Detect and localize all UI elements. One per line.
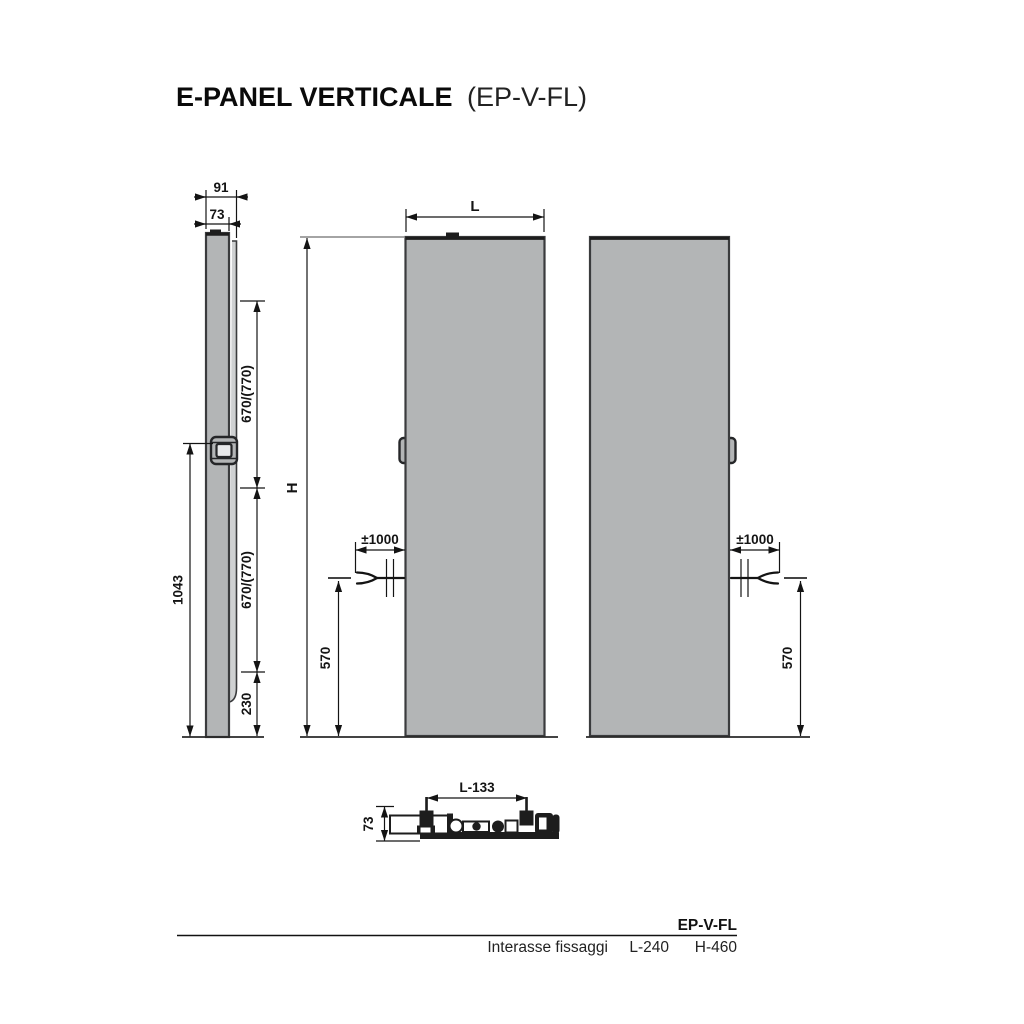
page-title-code: (EP-V-FL) (467, 82, 587, 112)
profile-pipe (450, 820, 463, 833)
cable-right (731, 559, 807, 597)
technical-drawing: E-PANEL VERTICALE (EP-V-FL) 91 (0, 0, 1024, 1024)
dim-cable-length-right-label: ±1000 (736, 532, 773, 547)
dim-side-chain: 670/(770) 670/(770) 230 (239, 301, 265, 736)
dim-cable-length-right: ±1000 (730, 532, 780, 573)
dim-span-lower-label: 670/(770) (239, 551, 254, 609)
spec-model: EP-V-FL (678, 917, 737, 934)
spec-l-value: L-240 (629, 939, 669, 956)
dim-cable-length-mid: ±1000 (356, 532, 406, 573)
dim-width-label: L (470, 198, 479, 215)
dim-connection-height-right-label: 570 (780, 647, 795, 670)
dim-depth-panel: 73 (194, 207, 241, 231)
spec-row-label: Interasse fissaggi (487, 939, 608, 956)
dim-connection-height-mid-label: 570 (318, 647, 333, 670)
dim-depth-total-label: 91 (213, 180, 229, 195)
dim-cable-length-mid-label: ±1000 (361, 532, 398, 547)
side-wall-bracket (211, 437, 237, 464)
spec-table: EP-V-FL Interasse fissaggi L-240 H-460 (177, 917, 737, 956)
front-vent-cap (446, 233, 459, 238)
dim-width: L (406, 198, 544, 232)
drawing-page: E-PANEL VERTICALE (EP-V-FL) 91 (0, 0, 1024, 1024)
spec-h-value: H-460 (695, 939, 738, 956)
dim-bottom-depth-label: 73 (361, 816, 376, 832)
dim-bracket-height-label: 1043 (171, 574, 186, 605)
dim-bracket-span: L-133 (427, 780, 527, 811)
dim-bracket-span-label: L-133 (459, 780, 495, 795)
profile-cross-section (390, 797, 560, 839)
side-rear-plate (230, 241, 237, 702)
side-panel-body (206, 233, 229, 737)
dim-bottom-offset-label: 230 (239, 693, 254, 716)
front-panel-body (406, 237, 545, 736)
right-view: ±1000 570 (586, 237, 810, 737)
profile-fitting (492, 821, 504, 833)
profile-valve (472, 822, 480, 830)
dim-connection-height-mid: 570 (318, 581, 339, 736)
bracket-block-left (420, 811, 434, 826)
side-vent-cap (210, 230, 221, 235)
dim-connection-height-right: 570 (780, 581, 801, 736)
page-title-main: E-PANEL VERTICALE (176, 82, 453, 112)
dim-span-upper-label: 670/(770) (239, 365, 254, 423)
page-title: E-PANEL VERTICALE (EP-V-FL) (176, 82, 587, 112)
bracket-block-right (520, 811, 534, 826)
dim-height: H (284, 237, 404, 736)
fork-connector-right (758, 573, 778, 584)
dim-depth-panel-label: 73 (209, 207, 225, 222)
fork-connector-mid (357, 573, 377, 584)
front-view: L H ±1000 570 (284, 198, 558, 737)
side-view: 91 73 670/(770) 670/(770) 230 1043 (171, 180, 266, 737)
bottom-view: L-133 73 (361, 780, 560, 841)
right-panel-body (590, 237, 729, 736)
cable-mid (328, 559, 404, 597)
dim-height-label: H (284, 483, 301, 494)
